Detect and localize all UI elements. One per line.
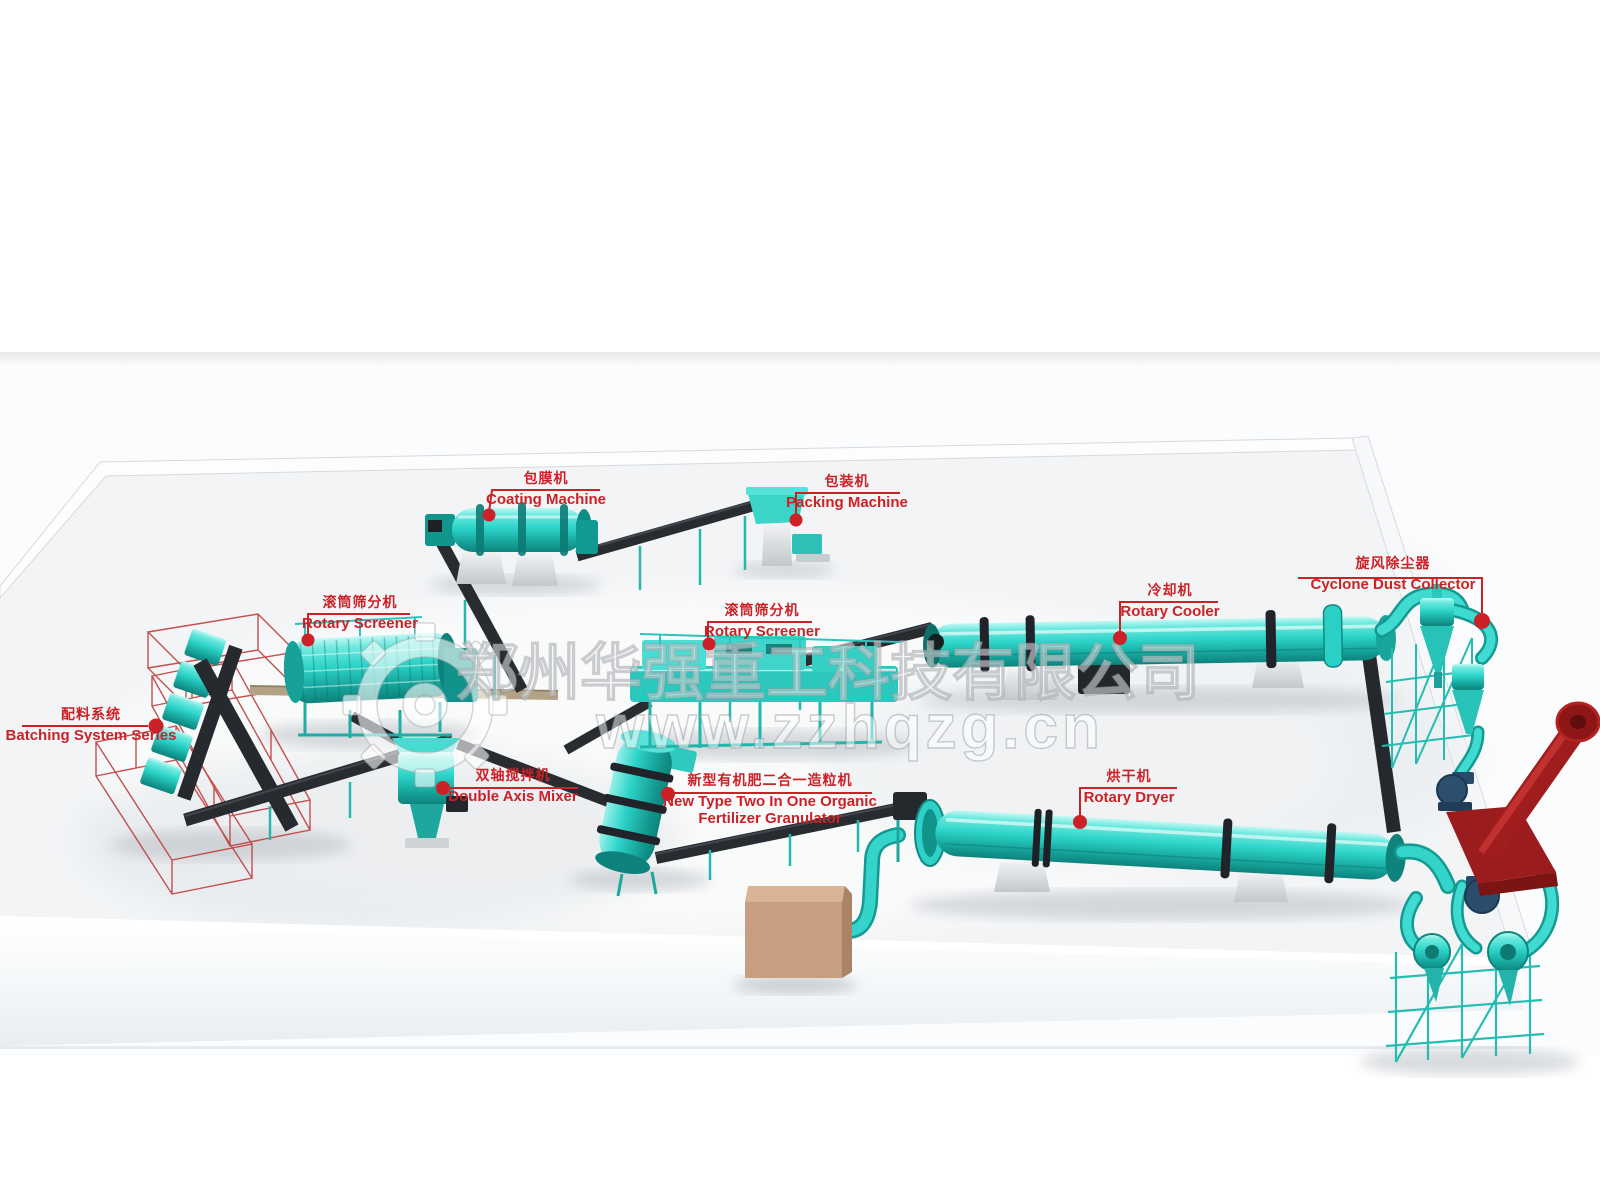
watermark-website-text: www.zzhqzg.cn — [595, 693, 1104, 762]
production-line-diagram: 郑州华强重工科技有限公司 www.zzhqzg.cn 包膜机 Coating M… — [0, 0, 1600, 1200]
scene-illustration: 郑州华强重工科技有限公司 www.zzhqzg.cn — [0, 0, 1600, 1200]
